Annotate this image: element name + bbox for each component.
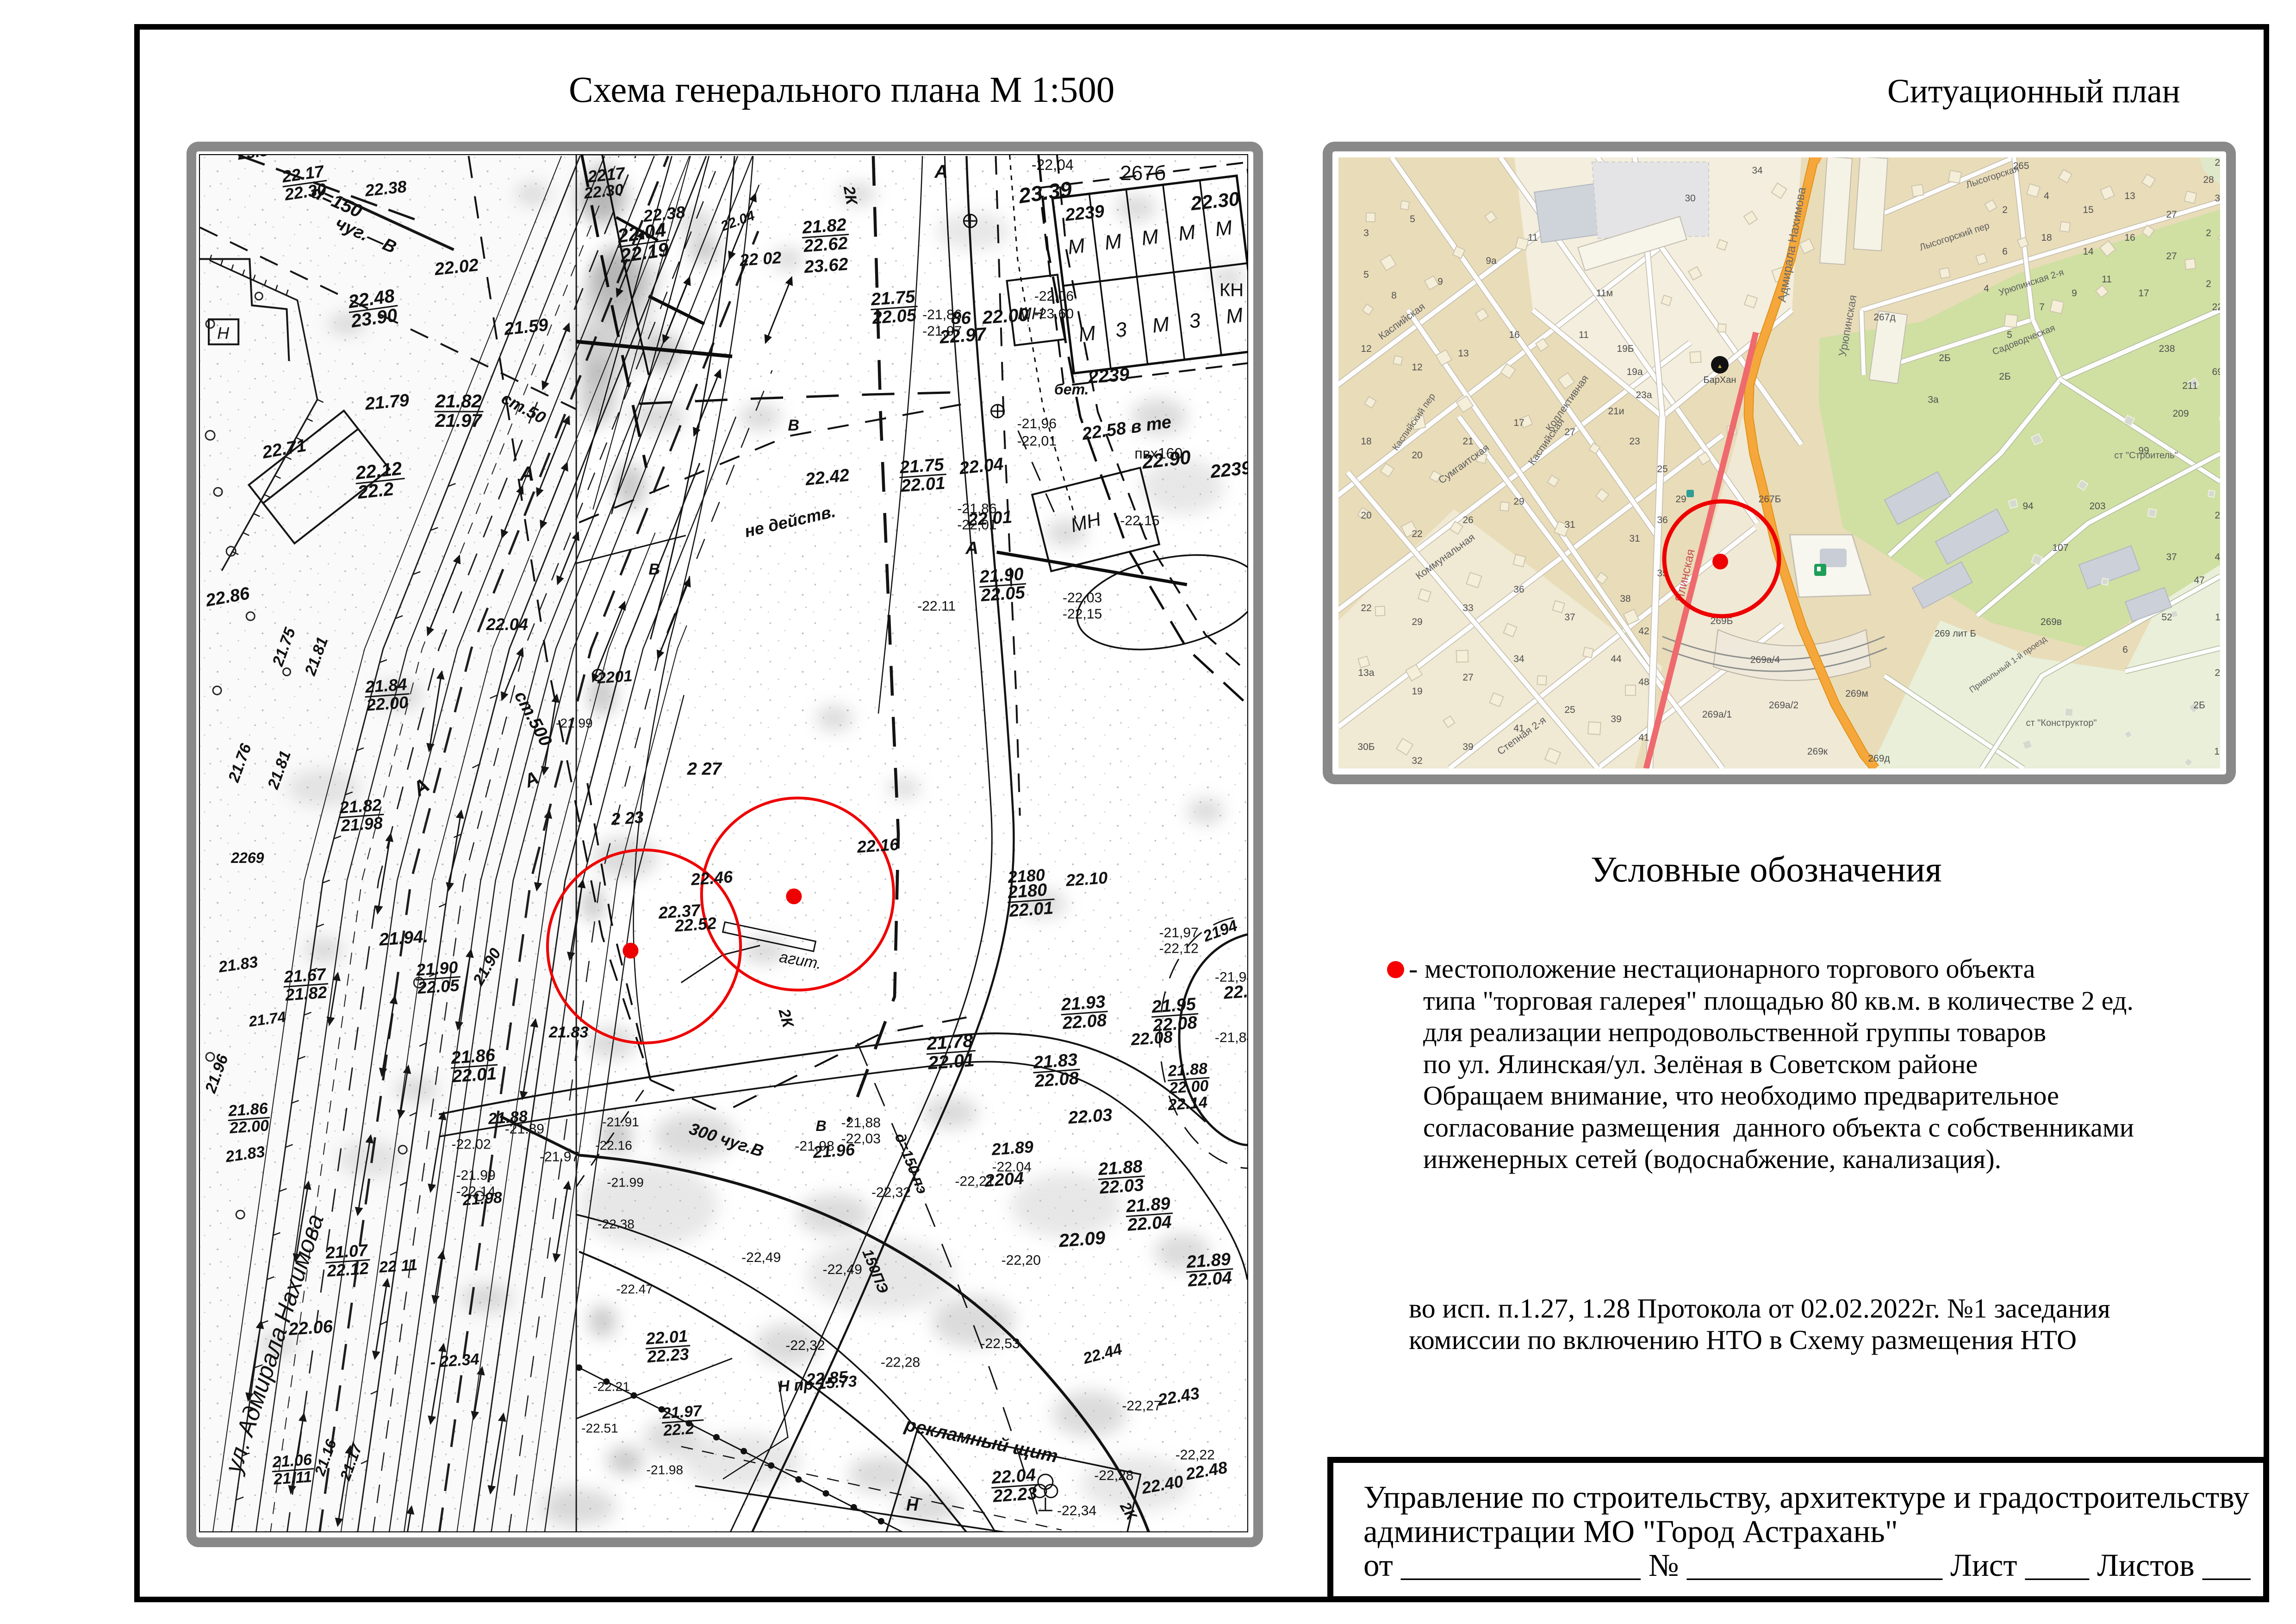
svg-text:-21,88: -21,88 bbox=[841, 1115, 881, 1131]
svg-text:22.2: 22.2 bbox=[662, 1420, 695, 1440]
svg-text:269м: 269м bbox=[1845, 688, 1868, 699]
svg-text:22.01: 22.01 bbox=[451, 1064, 497, 1087]
svg-text:29: 29 bbox=[1412, 617, 1422, 627]
svg-text:22.01: 22.01 bbox=[900, 474, 946, 496]
svg-text:27: 27 bbox=[1462, 672, 1473, 683]
svg-text:-23,60: -23,60 bbox=[1034, 306, 1074, 322]
svg-text:33: 33 bbox=[1462, 603, 1473, 613]
svg-text:27: 27 bbox=[1564, 427, 1575, 437]
svg-text:-22,04: -22,04 bbox=[1032, 156, 1074, 173]
svg-text:17: 17 bbox=[1513, 418, 1524, 428]
svg-text:46: 46 bbox=[2215, 552, 2220, 562]
svg-text:31: 31 bbox=[1564, 519, 1575, 530]
svg-text:267д: 267д bbox=[1873, 312, 1895, 323]
svg-text:34: 34 bbox=[1513, 654, 1524, 664]
svg-text:-22,28: -22,28 bbox=[1094, 1468, 1133, 1483]
svg-text:9а: 9а bbox=[1486, 256, 1497, 266]
svg-text:-22,06: -22,06 bbox=[1034, 289, 1074, 304]
svg-text:47: 47 bbox=[2194, 575, 2204, 586]
svg-text:22.97: 22.97 bbox=[939, 324, 988, 348]
svg-text:2а: 2а bbox=[2215, 668, 2220, 678]
svg-text:5: 5 bbox=[1363, 269, 1369, 280]
svg-text:21.98: 21.98 bbox=[461, 1189, 503, 1209]
svg-text:22.46: 22.46 bbox=[690, 867, 734, 889]
svg-text:1Б: 1Б bbox=[2214, 746, 2220, 757]
svg-text:22.00: 22.00 bbox=[229, 1117, 270, 1137]
svg-text:21и: 21и bbox=[1608, 406, 1624, 417]
svg-text:-22,32: -22,32 bbox=[871, 1185, 911, 1200]
svg-text:267Б: 267Б bbox=[1759, 494, 1781, 505]
svg-text:22.08: 22.08 bbox=[1130, 1027, 1174, 1049]
svg-text:-22,12: -22,12 bbox=[1159, 941, 1198, 956]
svg-text:25: 25 bbox=[2215, 510, 2220, 521]
svg-text:22.23: 22.23 bbox=[992, 1484, 1038, 1506]
svg-text:37: 37 bbox=[1564, 612, 1575, 623]
svg-text:22.04: 22.04 bbox=[1126, 1212, 1172, 1235]
svg-text:34: 34 bbox=[1752, 165, 1763, 176]
svg-text:А: А bbox=[519, 462, 535, 485]
svg-text:22.03: 22.03 bbox=[1067, 1106, 1113, 1128]
svg-text:22.23: 22.23 bbox=[646, 1344, 690, 1366]
svg-text:-22,49: -22,49 bbox=[823, 1262, 862, 1277]
svg-text:-22,03: -22,03 bbox=[1063, 590, 1102, 606]
svg-text:5: 5 bbox=[1410, 214, 1415, 225]
svg-text:21.83: 21.83 bbox=[548, 1024, 588, 1041]
svg-text:М: М bbox=[1177, 221, 1197, 245]
svg-text:-21,84: -21,84 bbox=[1215, 1030, 1247, 1045]
svg-text:21.82: 21.82 bbox=[435, 391, 481, 412]
svg-text:26: 26 bbox=[1462, 515, 1473, 525]
svg-text:В: В bbox=[816, 1118, 827, 1134]
svg-text:-22,28: -22,28 bbox=[881, 1355, 920, 1370]
svg-text:М: М bbox=[1225, 304, 1244, 328]
svg-text:30: 30 bbox=[1685, 193, 1695, 204]
svg-text:22.12: 22.12 bbox=[326, 1259, 369, 1280]
svg-text:6: 6 bbox=[2122, 644, 2128, 655]
svg-text:18: 18 bbox=[1361, 436, 1371, 447]
svg-text:22.05: 22.05 bbox=[871, 306, 917, 328]
svg-text:2Б: 2Б bbox=[1939, 353, 1950, 363]
svg-text:11: 11 bbox=[1579, 330, 1589, 340]
svg-text:-21.91: -21.91 bbox=[602, 1115, 639, 1129]
svg-text:27: 27 bbox=[2166, 251, 2177, 262]
svg-text:-21,97: -21,97 bbox=[1159, 925, 1198, 940]
svg-text:21.11: 21.11 bbox=[273, 1468, 312, 1488]
svg-text:41: 41 bbox=[1513, 723, 1524, 734]
svg-text:269а/2: 269а/2 bbox=[1769, 700, 1798, 711]
svg-text:269в: 269в bbox=[2041, 617, 2062, 627]
svg-text:11: 11 bbox=[2102, 274, 2112, 285]
svg-text:М: М bbox=[1140, 225, 1160, 250]
svg-text:М: М bbox=[1103, 230, 1123, 254]
svg-text:23а: 23а bbox=[1636, 390, 1652, 400]
svg-text:М: М bbox=[1151, 313, 1171, 337]
svg-text:269а/4: 269а/4 bbox=[1750, 655, 1780, 665]
svg-text:22.28: 22.28 bbox=[1223, 981, 1247, 1003]
svg-text:22.01: 22.01 bbox=[1008, 899, 1054, 921]
svg-text:221: 221 bbox=[2212, 302, 2220, 312]
svg-text:9: 9 bbox=[2072, 288, 2077, 299]
svg-text:-22,21: -22,21 bbox=[955, 1174, 994, 1189]
svg-text:4: 4 bbox=[2044, 191, 2049, 201]
svg-text:21.98: 21.98 bbox=[340, 813, 384, 835]
svg-text:2: 2 bbox=[2002, 205, 2008, 215]
svg-text:265: 265 bbox=[2013, 161, 2029, 171]
svg-text:32: 32 bbox=[1412, 756, 1422, 766]
svg-text:-22,32: -22,32 bbox=[785, 1338, 825, 1353]
svg-text:3а: 3а bbox=[1928, 394, 1939, 405]
svg-text:3: 3 bbox=[1363, 228, 1369, 238]
svg-text:30: 30 bbox=[2215, 193, 2220, 204]
svg-text:2: 2 bbox=[2206, 279, 2211, 289]
svg-text:238: 238 bbox=[2159, 344, 2175, 354]
svg-text:209: 209 bbox=[2172, 408, 2189, 419]
svg-text:11: 11 bbox=[2215, 612, 2220, 623]
svg-text:18: 18 bbox=[2041, 232, 2052, 243]
svg-text:41: 41 bbox=[1638, 732, 1649, 743]
svg-text:39: 39 bbox=[1611, 714, 1621, 725]
svg-text:42: 42 bbox=[1638, 626, 1649, 637]
svg-text:28: 28 bbox=[2203, 175, 2214, 185]
svg-text:44: 44 bbox=[1611, 654, 1622, 664]
svg-text:2239: 2239 bbox=[1064, 202, 1106, 225]
svg-text:-22,34: -22,34 bbox=[1057, 1503, 1096, 1518]
svg-text:25: 25 bbox=[1657, 464, 1668, 475]
svg-text:31: 31 bbox=[1629, 533, 1640, 544]
svg-text:-22.16: -22.16 bbox=[595, 1138, 632, 1152]
svg-text:22.06: 22.06 bbox=[287, 1317, 334, 1340]
svg-text:2201: 2201 bbox=[596, 667, 633, 687]
svg-text:36: 36 bbox=[1513, 584, 1524, 595]
svg-text:99: 99 bbox=[2138, 445, 2149, 456]
svg-text:-22.47: -22.47 bbox=[616, 1282, 653, 1296]
svg-text:2239: 2239 bbox=[1087, 364, 1131, 387]
svg-text:22.16: 22.16 bbox=[856, 835, 900, 856]
svg-text:-22,01: -22,01 bbox=[1017, 433, 1057, 449]
svg-text:2239: 2239 bbox=[1209, 457, 1247, 482]
svg-text:-21,96: -21,96 bbox=[1017, 416, 1057, 431]
svg-text:- 22.34: - 22.34 bbox=[429, 1350, 480, 1371]
svg-text:21.82: 21.82 bbox=[284, 982, 328, 1004]
svg-text:22.10: 22.10 bbox=[1065, 868, 1108, 890]
svg-text:-22.02: -22.02 bbox=[451, 1137, 491, 1152]
svg-text:22.52: 22.52 bbox=[673, 913, 717, 935]
svg-text:23.62: 23.62 bbox=[803, 255, 849, 277]
svg-text:12: 12 bbox=[1361, 344, 1371, 354]
svg-text:29: 29 bbox=[1675, 494, 1686, 505]
svg-text:22.05: 22.05 bbox=[980, 583, 1026, 606]
svg-text:-22,53: -22,53 bbox=[980, 1336, 1020, 1351]
svg-text:▲: ▲ bbox=[1717, 362, 1723, 369]
svg-text:22.00: 22.00 bbox=[365, 693, 409, 714]
svg-text:269 лит Б: 269 лит Б bbox=[1935, 629, 1976, 639]
svg-text:52: 52 bbox=[2161, 612, 2172, 623]
svg-text:М: М bbox=[1214, 216, 1234, 241]
svg-text:-21.99: -21.99 bbox=[607, 1175, 644, 1190]
svg-text:27: 27 bbox=[2166, 209, 2177, 220]
svg-text:-22,15: -22,15 bbox=[1063, 606, 1102, 622]
svg-text:БарХан: БарХан bbox=[1704, 375, 1736, 385]
svg-text:19: 19 bbox=[1412, 686, 1422, 697]
svg-text:-22.11: -22.11 bbox=[917, 599, 956, 614]
svg-text:-22.15: -22.15 bbox=[1120, 513, 1159, 529]
svg-text:-22.38: -22.38 bbox=[597, 1217, 635, 1231]
svg-text:М: М bbox=[1066, 234, 1086, 259]
svg-text:94: 94 bbox=[2022, 501, 2034, 512]
svg-text:2: 2 bbox=[2206, 228, 2211, 238]
svg-text:2269: 2269 bbox=[230, 849, 264, 866]
svg-text:203: 203 bbox=[2089, 501, 2105, 512]
svg-text:11м: 11м bbox=[1596, 288, 1613, 299]
svg-text:А: А bbox=[965, 539, 978, 558]
svg-text:13: 13 bbox=[1458, 348, 1468, 359]
svg-text:-21.98: -21.98 bbox=[647, 1463, 684, 1477]
svg-text:21.96: 21.96 bbox=[812, 1140, 856, 1162]
svg-text:-22,20: -22,20 bbox=[1002, 1253, 1041, 1268]
svg-text:22.04: 22.04 bbox=[1187, 1268, 1232, 1291]
svg-text:22 02: 22 02 bbox=[739, 248, 782, 269]
svg-text:22: 22 bbox=[1412, 529, 1422, 539]
svg-text:21.97: 21.97 bbox=[661, 1402, 703, 1423]
svg-text:22.2: 22.2 bbox=[356, 479, 395, 503]
svg-text:2Б: 2Б bbox=[1999, 371, 2010, 382]
svg-text:-21.97: -21.97 bbox=[540, 1149, 579, 1164]
svg-text:7: 7 bbox=[2039, 302, 2045, 312]
svg-text:23: 23 bbox=[1629, 436, 1640, 447]
svg-text:22 01: 22 01 bbox=[967, 507, 1013, 530]
svg-text:269к: 269к bbox=[1807, 746, 1828, 757]
svg-text:-22.51: -22.51 bbox=[581, 1421, 618, 1436]
svg-text:А: А bbox=[934, 162, 948, 182]
svg-text:69а: 69а bbox=[2212, 367, 2220, 377]
svg-text:6: 6 bbox=[2002, 246, 2008, 257]
svg-text:29: 29 bbox=[1513, 496, 1524, 507]
svg-text:9: 9 bbox=[1437, 276, 1443, 287]
svg-text:19Б: 19Б bbox=[1617, 344, 1634, 354]
svg-text:39: 39 bbox=[1462, 742, 1473, 752]
svg-text:20: 20 bbox=[1361, 510, 1371, 521]
svg-text:22.08: 22.08 bbox=[1061, 1011, 1108, 1033]
svg-text:16: 16 bbox=[1509, 330, 1519, 340]
svg-text:37: 37 bbox=[2166, 552, 2177, 562]
svg-text:22.62: 22.62 bbox=[803, 234, 848, 256]
svg-text:22.14: 22.14 bbox=[1167, 1093, 1208, 1114]
svg-text:21: 21 bbox=[1462, 436, 1473, 447]
svg-text:15: 15 bbox=[2083, 205, 2093, 215]
svg-text:26: 26 bbox=[2215, 157, 2220, 168]
svg-text:21.79: 21.79 bbox=[364, 391, 410, 414]
svg-text:-22,27: -22,27 bbox=[1122, 1398, 1161, 1413]
svg-text:2 23: 2 23 bbox=[610, 807, 644, 829]
svg-text:-21.99: -21.99 bbox=[456, 1168, 495, 1183]
svg-text:21.94.: 21.94. bbox=[378, 927, 429, 949]
svg-text:36: 36 bbox=[1657, 515, 1668, 525]
svg-text:48: 48 bbox=[1638, 677, 1649, 687]
svg-text:22.08: 22.08 bbox=[1033, 1068, 1080, 1091]
svg-text:30Б: 30Б bbox=[1357, 742, 1375, 752]
svg-text:В: В bbox=[649, 561, 660, 578]
svg-text:12: 12 bbox=[1412, 362, 1422, 373]
svg-text:бет.: бет. bbox=[1054, 381, 1089, 398]
svg-text:-22,49: -22,49 bbox=[741, 1250, 781, 1265]
svg-text:269д: 269д bbox=[1868, 753, 1890, 764]
svg-text:21.89: 21.89 bbox=[990, 1137, 1034, 1159]
svg-text:22: 22 bbox=[1361, 603, 1371, 613]
svg-text:2180: 2180 bbox=[1007, 865, 1045, 887]
svg-text:-21.99: -21.99 bbox=[556, 716, 593, 731]
svg-text:13: 13 bbox=[2124, 191, 2135, 201]
svg-text:22.05: 22.05 bbox=[417, 975, 460, 997]
svg-text:-22.21: -22.21 bbox=[593, 1379, 630, 1393]
svg-text:В: В bbox=[788, 417, 799, 434]
svg-text:11: 11 bbox=[1528, 232, 1538, 243]
svg-text:17: 17 bbox=[2138, 288, 2149, 299]
svg-text:ст "Конструктор": ст "Конструктор" bbox=[2026, 718, 2097, 728]
svg-text:269а/1: 269а/1 bbox=[1702, 709, 1732, 720]
svg-text:22.09: 22.09 bbox=[1058, 1228, 1106, 1251]
svg-text:22.00: 22.00 bbox=[981, 305, 1029, 328]
svg-text:22 11: 22 11 bbox=[378, 1256, 418, 1276]
svg-text:22.03: 22.03 bbox=[1099, 1175, 1145, 1198]
svg-text:2Б: 2Б bbox=[2193, 700, 2205, 711]
svg-text:14: 14 bbox=[2083, 246, 2094, 257]
svg-text:Н: Н bbox=[906, 1495, 919, 1514]
svg-text:5: 5 bbox=[2007, 330, 2012, 340]
svg-text:38: 38 bbox=[1620, 593, 1630, 604]
svg-text:21.97: 21.97 bbox=[435, 411, 482, 431]
svg-text:16: 16 bbox=[2124, 232, 2135, 243]
svg-text:13а: 13а bbox=[1358, 668, 1374, 678]
svg-text:2 27: 2 27 bbox=[687, 760, 722, 779]
svg-text:4: 4 bbox=[1984, 283, 1989, 294]
svg-text:8: 8 bbox=[1391, 290, 1397, 301]
svg-text:22.04: 22.04 bbox=[486, 615, 528, 634]
svg-text:-21.89: -21.89 bbox=[505, 1121, 544, 1137]
svg-text:22.01: 22.01 bbox=[927, 1050, 975, 1074]
svg-text:25: 25 bbox=[1564, 705, 1575, 715]
svg-text:267б: 267б bbox=[1120, 162, 1166, 185]
svg-text:211: 211 bbox=[2182, 381, 2197, 391]
svg-text:20: 20 bbox=[1412, 450, 1422, 461]
svg-text:107: 107 bbox=[2052, 543, 2068, 553]
svg-text:КН: КН bbox=[1220, 280, 1244, 300]
svg-text:19а: 19а bbox=[1626, 367, 1643, 377]
